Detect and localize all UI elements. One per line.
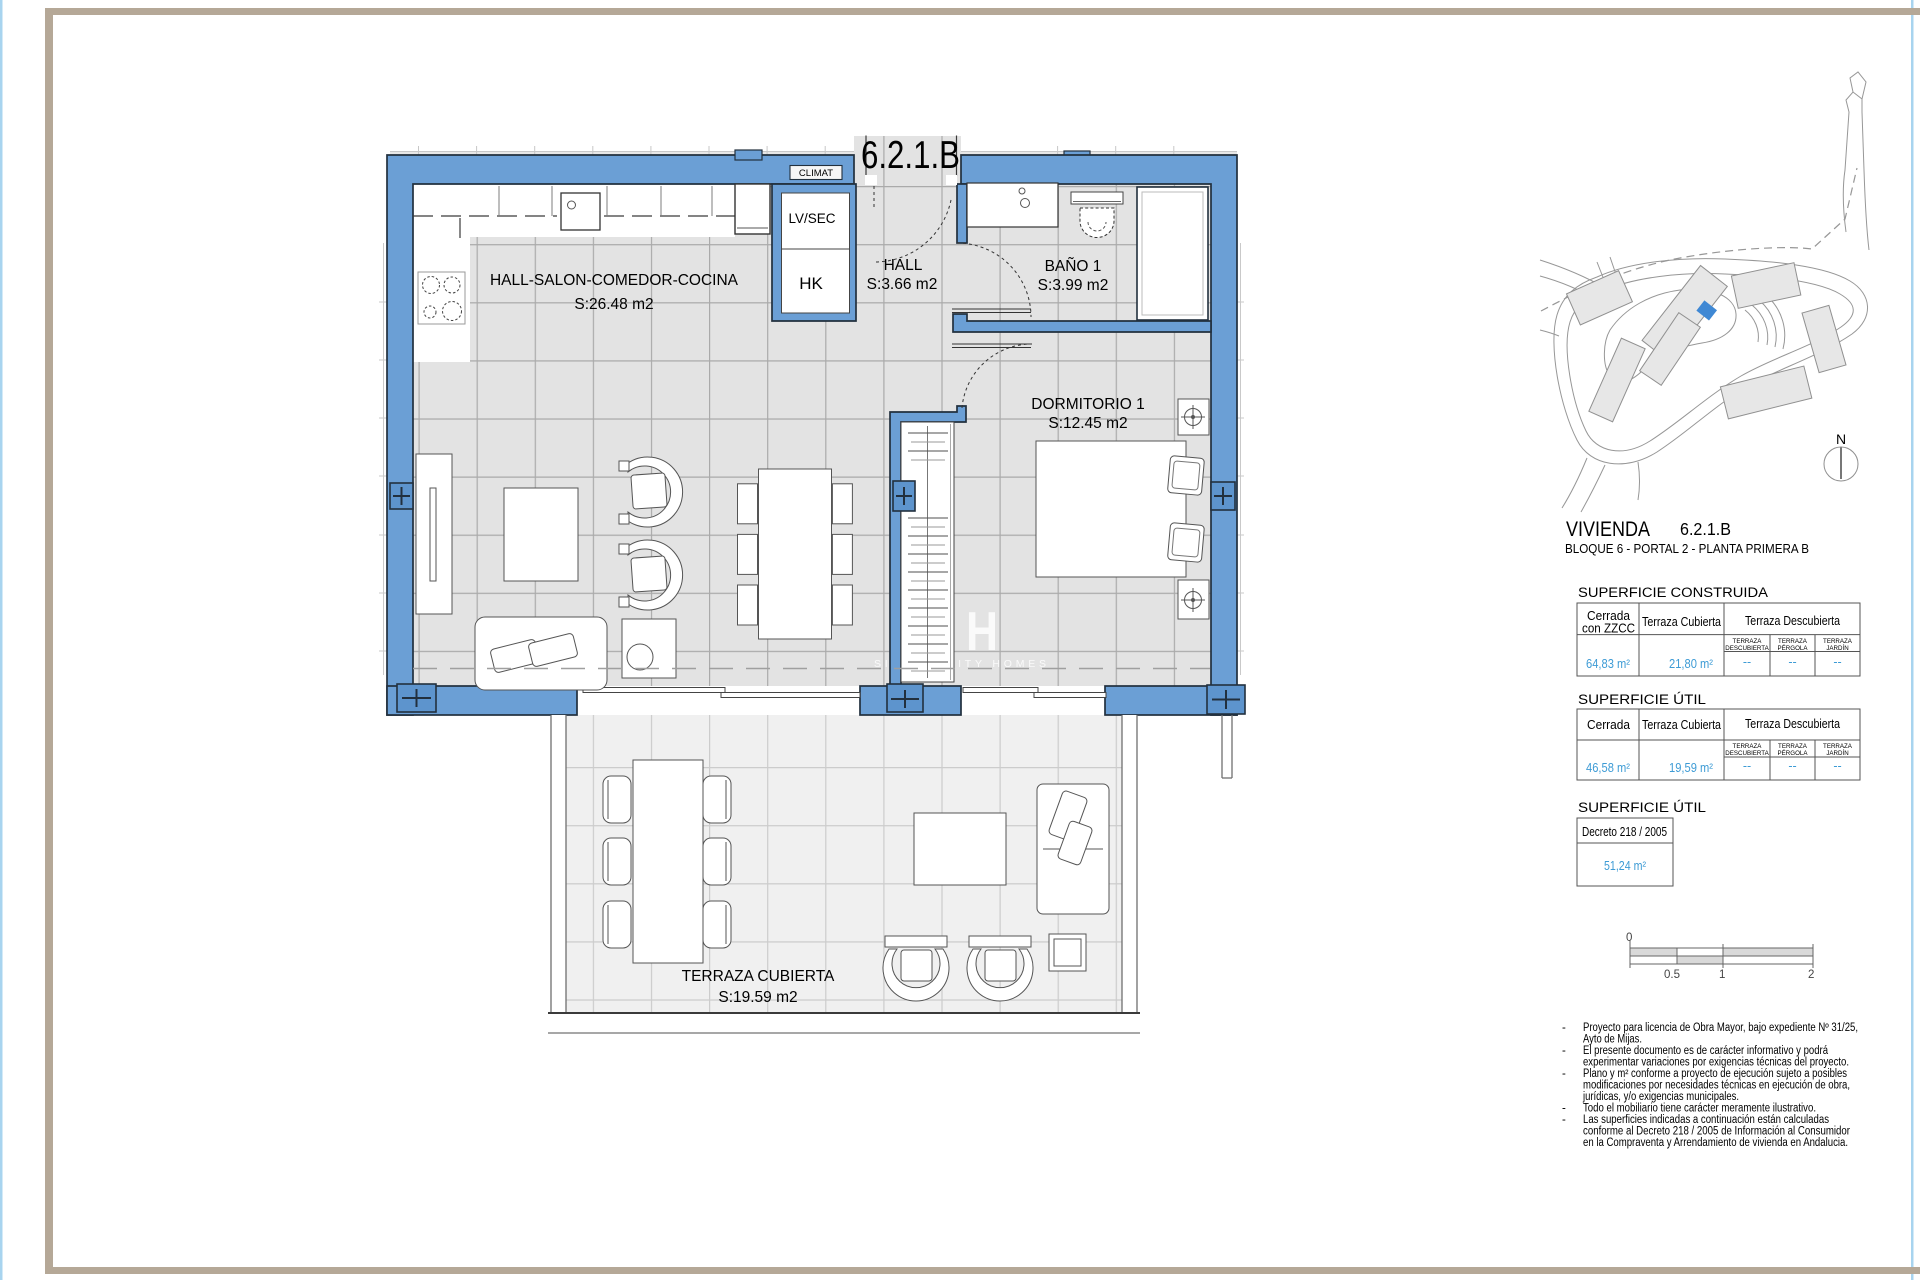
svg-text:BAÑO 1: BAÑO 1 [1045,258,1102,275]
svg-text:2: 2 [1808,969,1814,981]
svg-text:S:12.45 m2: S:12.45 m2 [1048,415,1127,432]
svg-text:Plano y m² conforme a proyecto: Plano y m² conforme a proyecto de ejecuc… [1583,1068,1847,1080]
svg-text:JARDÍN: JARDÍN [1826,645,1848,652]
svg-text:--: -- [1833,759,1841,773]
svg-text:PÉRGOLA: PÉRGOLA [1778,645,1809,652]
svg-text:1: 1 [1719,969,1725,981]
svg-text:21,80 m²: 21,80 m² [1669,657,1713,671]
svg-text:con ZZCC: con ZZCC [1582,622,1635,636]
svg-text:TERRAZA: TERRAZA [1733,638,1763,645]
svg-text:0: 0 [1626,932,1632,944]
svg-text:19,59 m²: 19,59 m² [1669,761,1713,775]
svg-text:Las superficies indicadas a co: Las superficies indicadas a continuación… [1583,1114,1829,1126]
svg-text:51,24 m²: 51,24 m² [1604,859,1646,873]
svg-text:N: N [1836,431,1846,447]
svg-text:HALL-SALON-COMEDOR-COCINA: HALL-SALON-COMEDOR-COCINA [490,272,739,289]
svg-text:SUPERFICIE CONSTRUIDA: SUPERFICIE CONSTRUIDA [1578,585,1768,600]
svg-text:S:3.66 m2: S:3.66 m2 [867,276,938,293]
svg-text:LV/SEC: LV/SEC [788,211,835,226]
svg-text:S:19.59 m2: S:19.59 m2 [718,989,797,1006]
svg-text:jurídicas, y/o exigencias muni: jurídicas, y/o exigencias municipales. [1582,1091,1739,1103]
svg-text:HK: HK [799,274,823,293]
svg-text:--: -- [1833,655,1841,669]
svg-text:Cerrada: Cerrada [1587,718,1630,732]
svg-text:--: -- [1788,759,1796,773]
svg-text:6.2.1.B: 6.2.1.B [1680,519,1731,539]
svg-text:Terraza Cubierta: Terraza Cubierta [1642,615,1721,629]
svg-text:SUPERFICIE ÚTIL: SUPERFICIE ÚTIL [1578,800,1707,815]
svg-text:-: - [1562,1103,1566,1115]
svg-text:TERRAZA: TERRAZA [1733,743,1763,750]
svg-text:Todo el mobiliario tiene carác: Todo el mobiliario tiene carácter merame… [1583,1103,1816,1115]
svg-text:TERRAZA: TERRAZA [1823,743,1853,750]
svg-text:Terraza Descubierta: Terraza Descubierta [1745,614,1840,628]
svg-text:CLIMAT: CLIMAT [799,168,833,179]
svg-text:Terraza Descubierta: Terraza Descubierta [1745,717,1840,731]
svg-text:TERRAZA: TERRAZA [1778,638,1808,645]
svg-text:6.2.1.B: 6.2.1.B [861,134,960,177]
svg-text:Terraza Cubierta: Terraza Cubierta [1642,718,1721,732]
svg-text:TERRAZA CUBIERTA: TERRAZA CUBIERTA [682,968,835,985]
svg-text:SUPERFICIE ÚTIL: SUPERFICIE ÚTIL [1578,692,1707,707]
svg-text:El presente documento es de ca: El presente documento es de carácter inf… [1583,1045,1828,1057]
svg-text:Proyecto para licencia de Obra: Proyecto para licencia de Obra Mayor, ba… [1583,1022,1858,1034]
svg-text:DESCUBIERTA: DESCUBIERTA [1725,750,1769,757]
svg-text:--: -- [1743,655,1751,669]
svg-text:-: - [1562,1114,1566,1126]
svg-text:en la Compraventa y Arrendamie: en la Compraventa y Arrendamiento de viv… [1583,1137,1848,1149]
svg-text:DESCUBIERTA: DESCUBIERTA [1725,645,1769,652]
svg-text:S:3.99 m2: S:3.99 m2 [1038,277,1109,294]
svg-text:DORMITORIO 1: DORMITORIO 1 [1031,396,1144,413]
svg-text:experimentar variaciones por e: experimentar variaciones por exigencias … [1583,1057,1849,1069]
svg-text:--: -- [1743,759,1751,773]
svg-text:TERRAZA: TERRAZA [1823,638,1853,645]
svg-text:64,83 m²: 64,83 m² [1586,657,1630,671]
svg-text:0.5: 0.5 [1664,969,1680,981]
svg-text:PÉRGOLA: PÉRGOLA [1778,750,1809,757]
svg-text:modificaciones por necesidades: modificaciones por necesidades técnicas … [1583,1080,1850,1092]
svg-text:VIVIENDA: VIVIENDA [1566,518,1650,541]
svg-text:-: - [1562,1022,1566,1034]
svg-text:-: - [1562,1068,1566,1080]
svg-text:HALL: HALL [884,257,923,274]
svg-text:JARDÍN: JARDÍN [1826,750,1848,757]
svg-text:Ayto de Mijas.: Ayto de Mijas. [1583,1034,1642,1046]
svg-text:H: H [966,600,998,662]
svg-text:S:26.48 m2: S:26.48 m2 [574,296,653,313]
svg-text:--: -- [1788,655,1796,669]
svg-text:46,58 m²: 46,58 m² [1586,761,1630,775]
svg-text:conforme al Decreto 218 / 2005: conforme al Decreto 218 / 2005 de Inform… [1583,1126,1850,1138]
svg-text:Decreto 218 / 2005: Decreto 218 / 2005 [1582,825,1667,839]
svg-text:-: - [1562,1045,1566,1057]
svg-text:BLOQUE 6 - PORTAL 2 - PLANTA P: BLOQUE 6 - PORTAL 2 - PLANTA PRIMERA B [1565,541,1809,556]
svg-text:TERRAZA: TERRAZA [1778,743,1808,750]
